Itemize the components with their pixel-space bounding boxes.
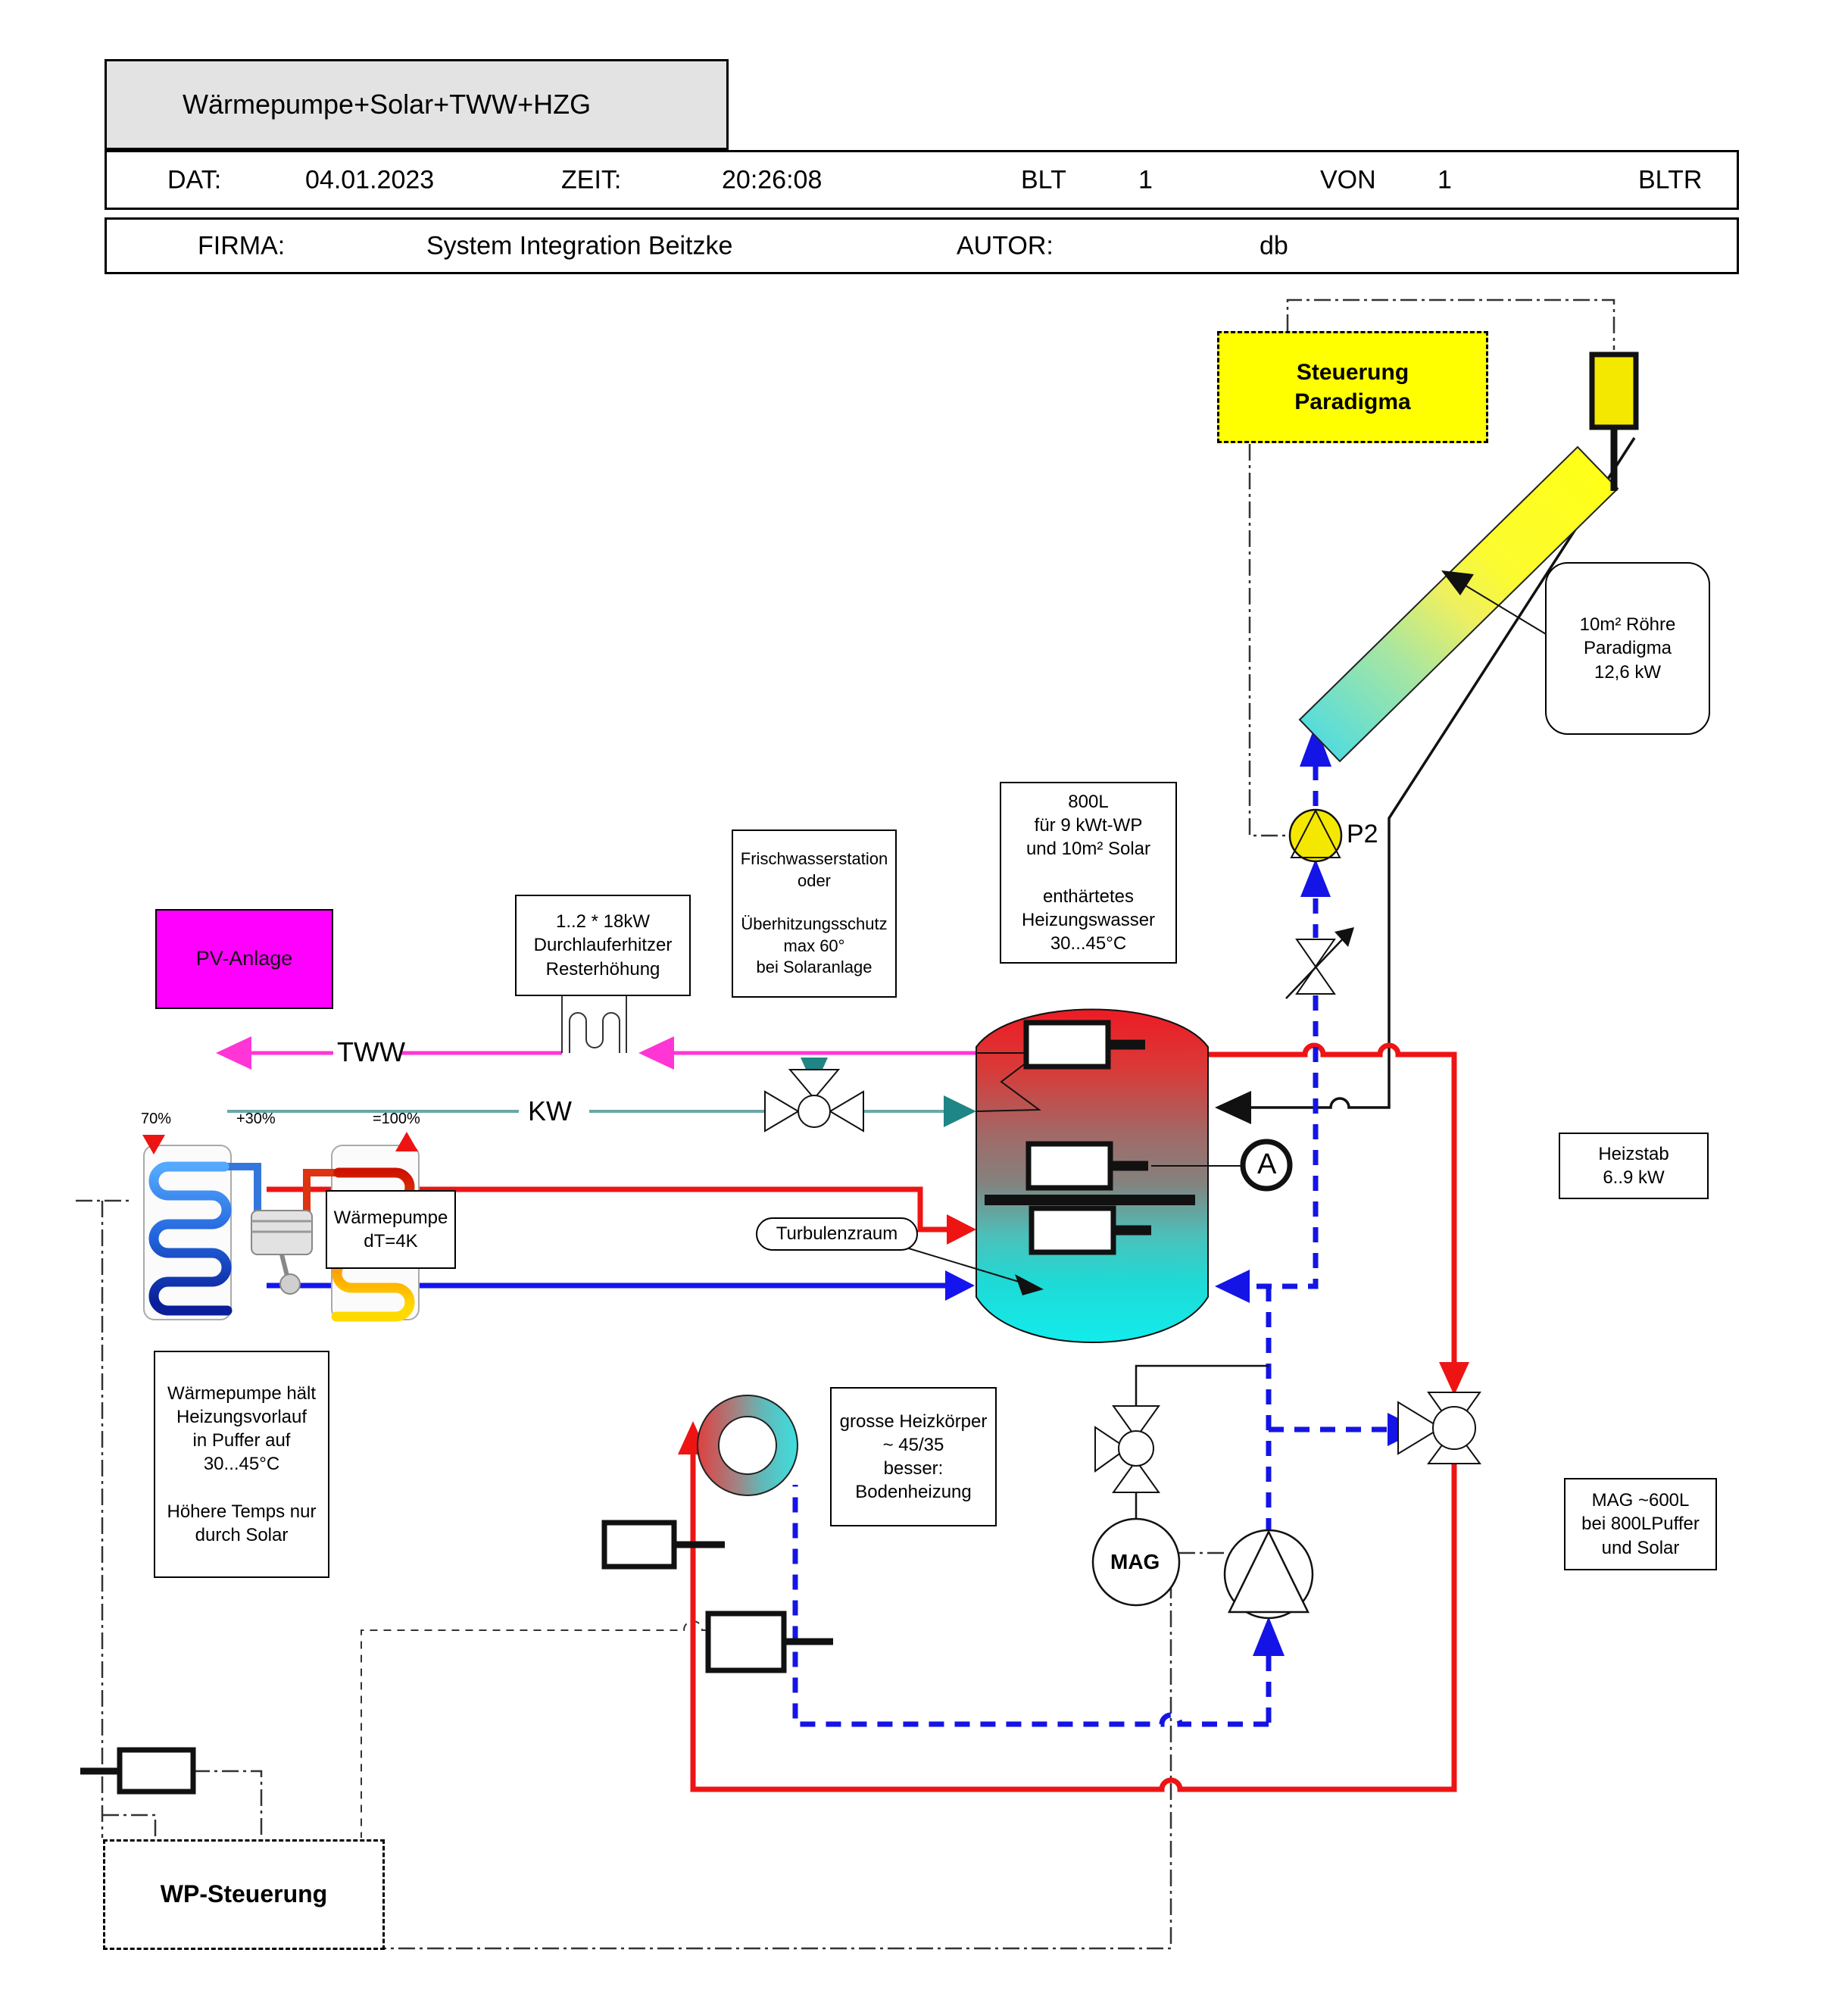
bltr-label: BLTR [1638,165,1702,195]
steuerung-paradigma-box: Steuerung Paradigma [1217,331,1488,443]
schematic-page: Wärmepumpe+Solar+TWW+HZG DAT: 04.01.2023… [0,0,1848,2009]
solar-return-arrow [1215,1091,1251,1124]
cold-pipe-arrow [945,1270,975,1301]
heat-out-arrow [395,1132,418,1151]
blt-value: 1 [1138,165,1153,195]
wp-steuerung-box: WP-Steuerung [103,1839,385,1950]
collector-note: 10m² Röhre Paradigma 12,6 kW [1545,562,1710,735]
header-row-1: DAT: 04.01.2023 ZEIT: 20:26:08 BLT 1 VON… [105,150,1739,210]
von-value: 1 [1438,165,1452,195]
hp-mid-pct: +30% [236,1111,276,1128]
mag-label: MAG [1110,1550,1160,1574]
firma-label: FIRMA: [198,231,285,261]
collector-sensor [1592,355,1636,427]
kw-mixing-valve [765,1070,863,1131]
hp-right-pct: =100% [373,1111,420,1128]
zeit-label: ZEIT: [561,165,621,195]
blt-label: BLT [1021,165,1066,195]
frischwasser-note: Frischwasserstation oder Überhitzungssch… [732,830,897,998]
hzg-pump [1225,1530,1313,1618]
autor-value: db [1260,231,1288,261]
autor-label: AUTOR: [957,231,1054,261]
wp-haelt-note: Wärmepumpe hält Heizungsvorlauf in Puffe… [154,1351,329,1578]
kw-arrow [944,1095,976,1127]
von-label: VON [1320,165,1376,195]
mag-note: MAG ~600L bei 800LPuffer und Solar [1564,1478,1717,1570]
drawing-title: Wärmepumpe+Solar+TWW+HZG [183,89,591,120]
control-wiring [76,300,1614,1948]
solar-reg-valve [1286,927,1354,998]
tww-label: TWW [337,1036,405,1068]
hp-left-pct: 70% [141,1111,171,1128]
hzg-mixing-valve [1398,1392,1480,1464]
title-box: Wärmepumpe+Solar+TWW+HZG [105,59,729,150]
header-row-2: FIRMA: System Integration Beitzke AUTOR:… [105,217,1739,274]
tank-note: 800L für 9 kWt-WP und 10m² Solar enthärt… [1000,782,1177,964]
sensor-a-label: A [1257,1148,1276,1181]
dat-value: 04.01.2023 [305,165,434,195]
heizkoerper-note: grosse Heizkörper ~ 45/35 besser: Bodenh… [830,1387,997,1526]
pv-anlage-box: PV-Anlage [155,909,333,1009]
zeit-value: 20:26:08 [722,165,822,195]
p2-label: P2 [1347,820,1378,849]
pump-p2 [1290,810,1341,861]
compressor [251,1211,312,1294]
dat-label: DAT: [167,165,221,195]
radiator-ring [698,1395,798,1495]
relay-control-line [361,1621,708,1838]
firma-value: System Integration Beitzke [426,231,732,261]
heizstab-note: Heizstab 6..9 kW [1559,1133,1709,1199]
kw-label: KW [528,1095,572,1127]
solar-return-pipe [1250,438,1634,1108]
waermepumpe-note: Wärmepumpe dT=4K [326,1190,456,1269]
durchlauferhitzer-note: 1..2 * 18kW Durchlauferhitzer Resterhöhu… [515,895,691,996]
turbulenzraum-pill: Turbulenzraum [756,1217,918,1251]
inline-heater-coil [562,995,626,1053]
